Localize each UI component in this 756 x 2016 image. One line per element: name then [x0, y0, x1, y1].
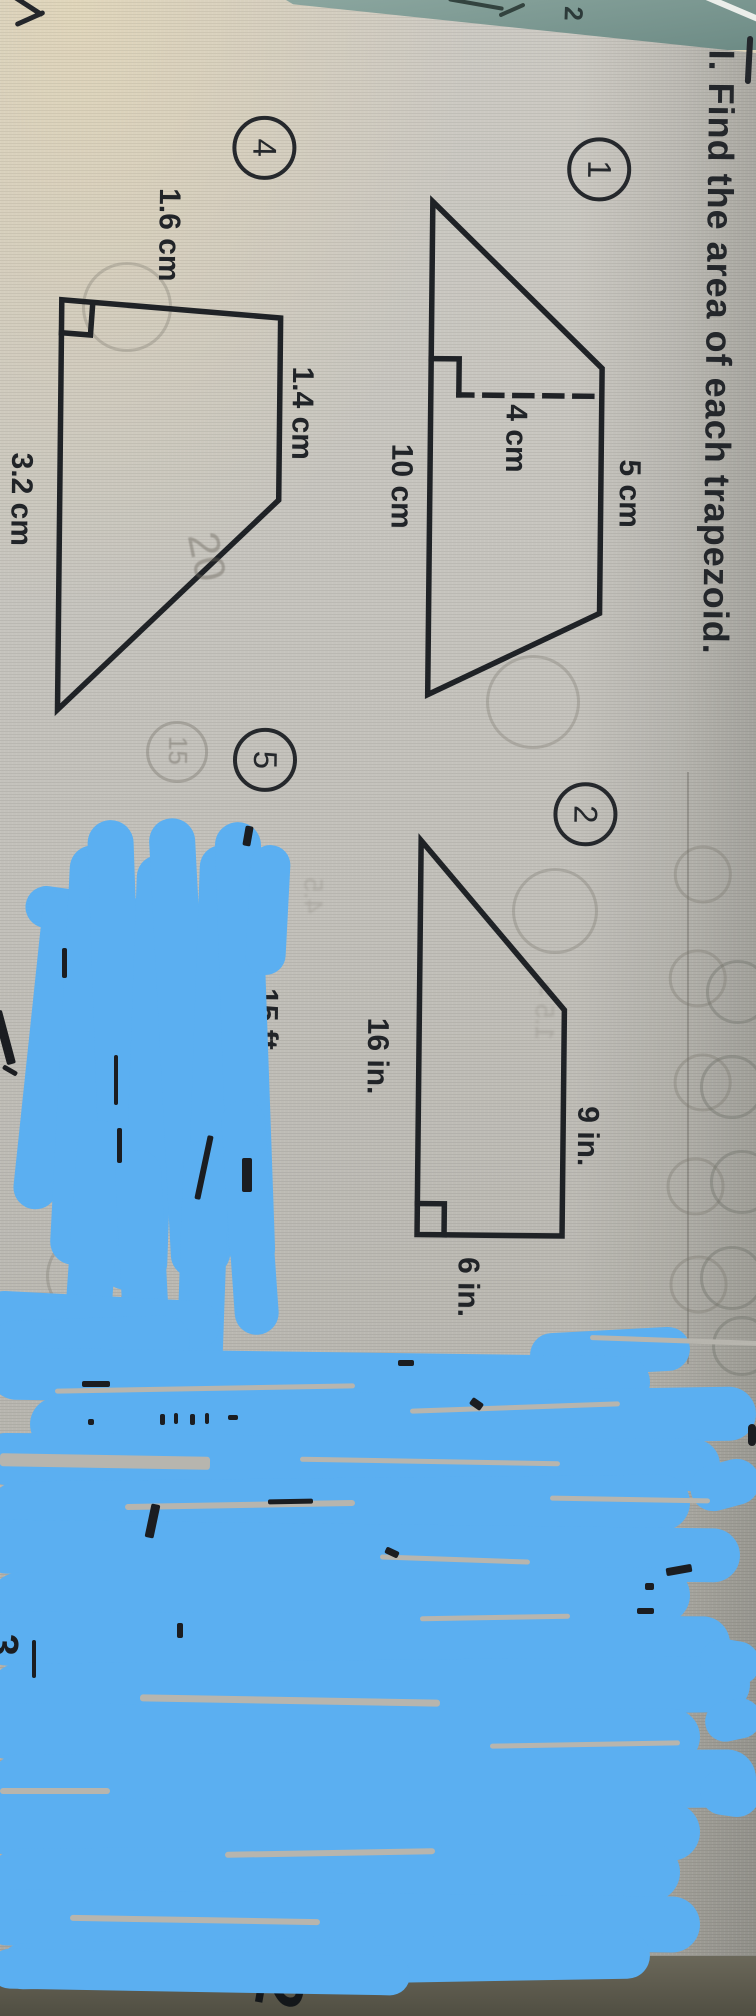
label-p4-base: 3.2 cm	[3, 452, 38, 546]
label-p2-side: 6 in.	[450, 1257, 485, 1317]
problem-2-number-badge: 2	[553, 782, 618, 847]
problem-2-number: 2	[566, 805, 604, 824]
label-p4-left: 1.6 cm	[151, 188, 186, 282]
problem-4-number: 4	[245, 138, 283, 157]
problem-5-number-badge: 5	[233, 728, 298, 793]
problem-5-number: 5	[246, 751, 284, 770]
height-dashed-line-1	[459, 395, 592, 396]
label-p1-top: 5 cm	[611, 459, 646, 528]
right-angle-marker-4	[61, 303, 92, 335]
left-edge-digit: 3	[0, 1633, 26, 1657]
label-p2-base: 16 in.	[359, 1018, 394, 1095]
right-angle-marker-2	[417, 1204, 444, 1235]
trapezoid-4	[58, 300, 281, 712]
pencil-ghost-answer: 20	[177, 528, 236, 586]
photo-of-worksheet: 4.5 1.5 = I. Find the area of each trape…	[0, 0, 756, 2016]
label-p2-top: 9 in.	[570, 1106, 605, 1166]
problem-1-number: 1	[580, 160, 618, 179]
problem-4-number-badge: 4	[232, 116, 297, 181]
right-angle-marker-1	[431, 359, 459, 395]
book-cover-digit: 2	[557, 6, 588, 22]
label-p1-height: 4 cm	[498, 404, 533, 473]
label-p1-base: 10 cm	[383, 444, 418, 529]
problem-1-number-badge: 1	[567, 137, 632, 202]
trapezoid-2	[417, 841, 566, 1236]
label-p4-top: 1.4 cm	[284, 366, 319, 460]
pencil-ghost-circled-number: 15	[162, 736, 193, 765]
